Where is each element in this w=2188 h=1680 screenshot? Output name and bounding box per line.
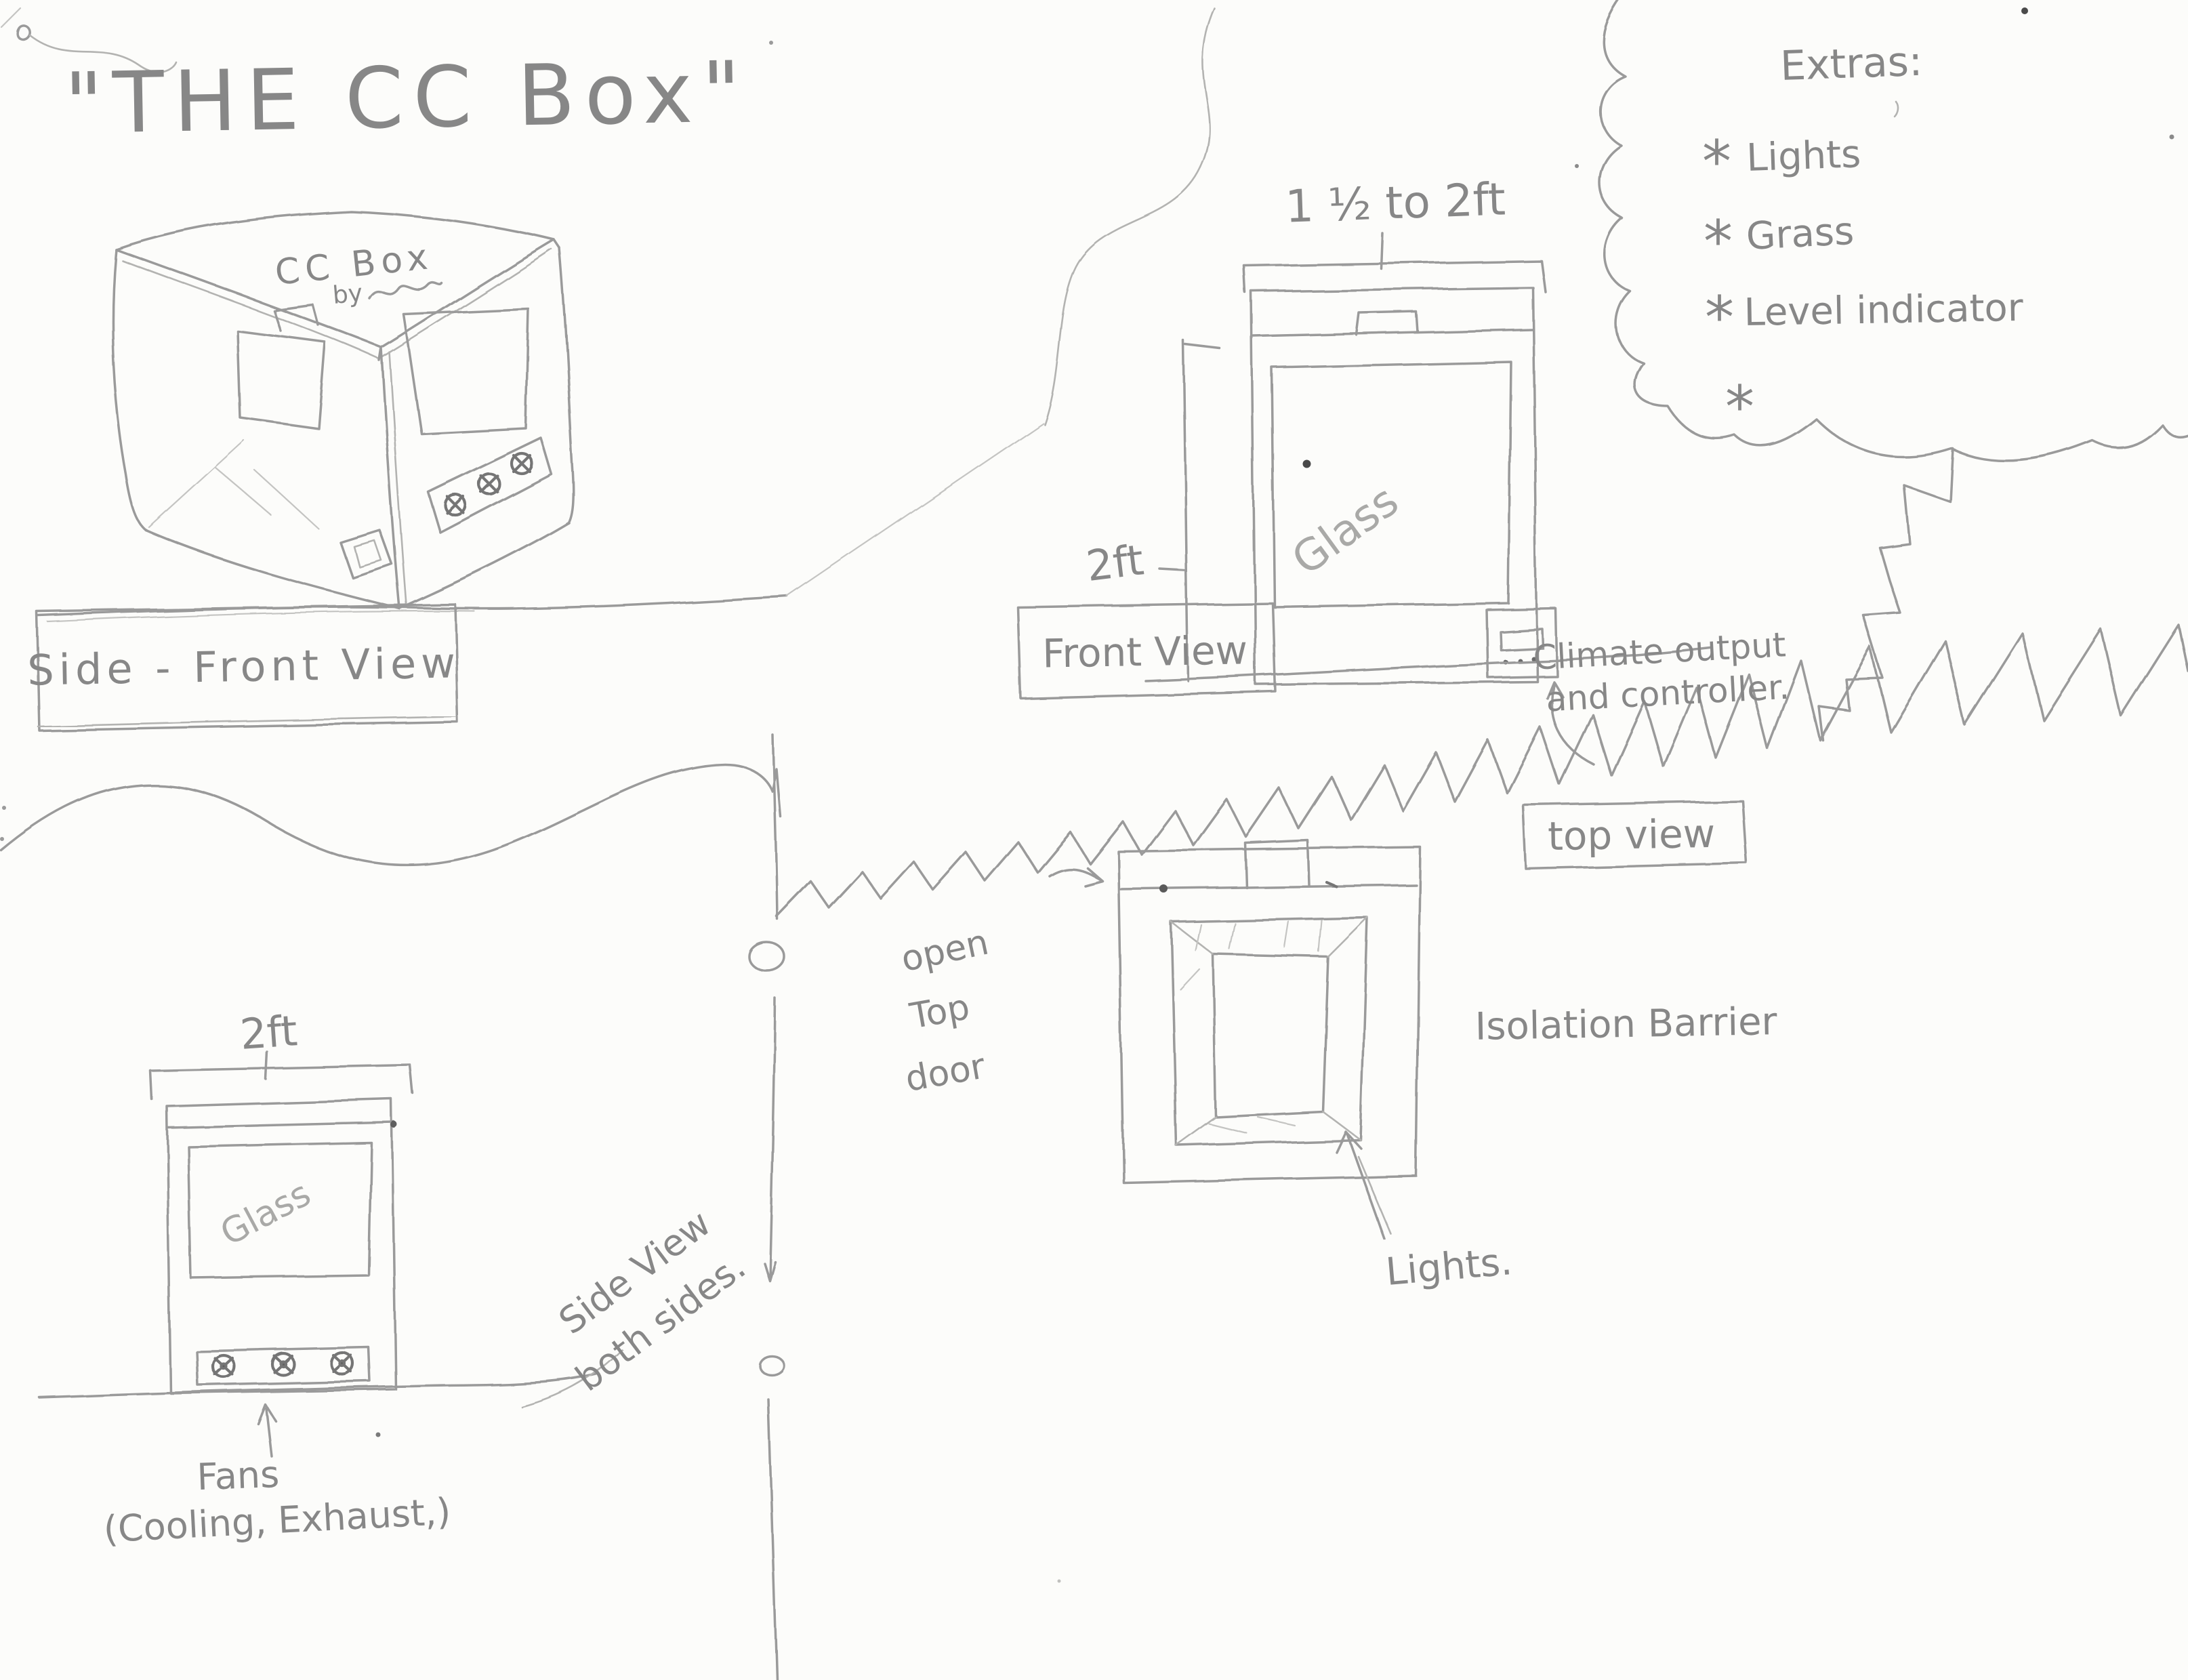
front-view-glass-label: Glass [1283,476,1408,586]
extras-bullet-3: * [1705,284,1734,352]
side-front-view-label-box: Side - Front View [27,605,461,731]
door-note-line3: door [903,1046,989,1100]
extras-heading: Extras: [1779,38,1923,90]
extras-item-level-indicator: Level indicator [1743,286,2024,335]
side-fan-icons [213,1353,353,1377]
extras-bullet-4: * [1725,373,1754,441]
cc-box-sketch: Extras: * Lights * Grass * Level indicat… [0,0,2188,1680]
top-view-drawing [1049,840,1420,1239]
lights-note: Lights. [1384,1239,1514,1294]
iso-object-byline: by [331,279,364,310]
front-view-width-dim: 1 ½ to 2ft [1284,173,1506,232]
sketch-page: Extras: * Lights * Grass * Level indicat… [0,0,2188,1680]
front-view-label: Front View [1042,627,1248,676]
front-view-label-box: Front View [1018,603,1275,698]
side-view-drawing [39,1052,622,1456]
extras-bullet-1: * [1702,128,1731,196]
side-view-width-dim: 2ft [239,1006,299,1059]
extras-cloud: Extras: * Lights * Grass * Level indicat… [1599,0,2188,460]
front-view-height-dim: 2ft [1083,535,1147,591]
side-view-glass-label: Glass [214,1173,317,1254]
extras-item-lights: Lights [1746,132,1861,180]
top-view-label-box: top view [1523,801,1747,869]
top-view-label: top view [1548,811,1716,859]
extras-item-grass: Grass [1745,209,1855,259]
isolation-barrier-note: Isolation Barrier [1474,1000,1778,1049]
extras-bullet-2: * [1704,208,1733,276]
page-title: "THE CC Box" [64,43,751,153]
side-front-view-label: Side - Front View [27,638,461,695]
fans-note-line2: (Cooling, Exhaust,) [102,1490,451,1551]
door-note-line2: Top [907,987,973,1037]
door-note-line1: open [898,922,992,981]
controller-note-line2: and controller. [1545,668,1790,720]
fans-note-line1: Fans [197,1453,281,1498]
title-block: "THE CC Box" [18,26,751,153]
